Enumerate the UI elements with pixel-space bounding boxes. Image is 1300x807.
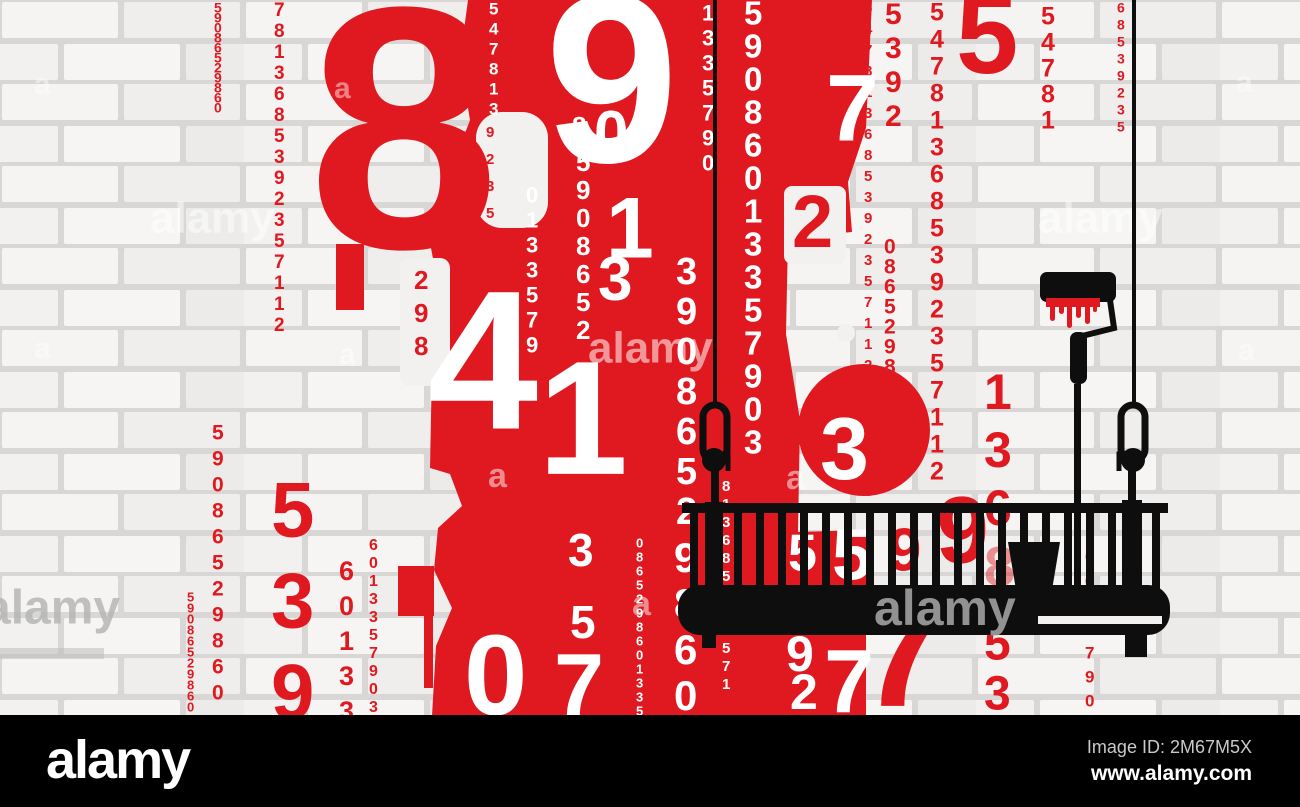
watermark-text: a: [34, 68, 51, 101]
railing-post: [712, 510, 720, 590]
big-digit: 2: [792, 180, 833, 263]
watermark-subline: [0, 648, 104, 659]
railing-top-bar: [682, 503, 1168, 513]
watermark-text: a: [339, 338, 356, 371]
railing-post: [822, 510, 830, 590]
watermark-text: a: [34, 332, 51, 365]
digit-column: 68539235: [1117, 0, 1125, 134]
railing-post: [910, 510, 918, 590]
watermark-text: a: [632, 585, 652, 623]
railing-post: [954, 510, 962, 590]
big-digit: 3: [568, 524, 594, 576]
digit-column: 59086013357903: [744, 0, 762, 460]
digit-column: 547813: [489, 0, 499, 119]
ground-bar: [0, 715, 1300, 807]
watermark-text: a: [1236, 66, 1253, 99]
watermark-text: alamy: [0, 582, 120, 635]
big-digit: 4: [428, 250, 538, 471]
big-digit: 5: [956, 0, 1018, 97]
digit-column: 0865298: [884, 236, 896, 379]
watermark-text: alamy: [874, 580, 1016, 636]
railing-post: [976, 510, 984, 590]
red-drip-bar: [424, 612, 433, 688]
big-digit: 7: [826, 55, 879, 161]
digit-column: 59086529860: [212, 422, 224, 705]
red-block: [398, 566, 434, 616]
railing-post: [1152, 510, 1160, 590]
watermark-text: alamy: [588, 324, 713, 373]
deck-under-bar: [706, 620, 818, 628]
deck-right-foot: [1125, 633, 1147, 657]
railing-post: [844, 510, 852, 590]
railing-post: [1130, 510, 1138, 590]
railing-post: [932, 510, 940, 590]
alamy-logo: alamy: [46, 730, 191, 790]
railing-post: [1086, 510, 1094, 590]
digit-column: 547813685392357112: [930, 0, 944, 486]
railing-post: [756, 510, 764, 590]
watermark-text: a: [334, 72, 351, 105]
paint-ball-hole: [837, 324, 855, 342]
digit-column: 59086529860: [187, 590, 194, 715]
digit-column: 59086529860: [214, 0, 222, 115]
watermark-text: a: [786, 459, 806, 497]
railing-post: [1064, 510, 1072, 590]
railing-post: [778, 510, 786, 590]
railing-post: [866, 510, 874, 590]
watermark-text: a: [1238, 334, 1255, 367]
deck-left-foot: [702, 620, 716, 648]
deck-slot: [1038, 616, 1162, 624]
digit-column: 60133: [339, 556, 354, 726]
watermark-text: a: [488, 457, 508, 495]
digit-column: 3908652: [676, 251, 697, 533]
railing-post: [800, 510, 808, 590]
website-label: www.alamy.com: [1090, 762, 1252, 785]
image-id-label: Image ID: 2M67M5X: [1087, 737, 1252, 757]
left-rope: [713, 0, 717, 408]
watermark-text: alamy: [1038, 194, 1163, 243]
digit-column: 539: [271, 466, 314, 736]
big-digit: 3: [820, 399, 869, 498]
railing-post: [1108, 510, 1116, 590]
watermark-front-layer: alamy: [874, 580, 1016, 636]
big-digit: 2: [790, 664, 818, 720]
railing-post: [888, 510, 896, 590]
big-digit: 8: [572, 111, 586, 141]
big-digit: 0: [594, 99, 628, 168]
big-digit: 3: [598, 245, 632, 314]
digit-column: 1335790: [702, 0, 714, 175]
bucket-icon: [1008, 542, 1060, 590]
big-digit: 5: [446, 118, 479, 185]
digit-column: 0865298601335: [636, 536, 643, 719]
digit-column: 7813685392357112: [274, 0, 285, 336]
railing-post: [690, 510, 698, 590]
railing-post: [734, 510, 742, 590]
right-rope: [1132, 0, 1136, 408]
digit-column: 6013357903: [369, 537, 378, 716]
illustration-canvas: 5908652986078136853923571129235711259086…: [0, 0, 1300, 807]
digit-column: 5392: [885, 0, 902, 133]
digit-column: 54781: [1041, 3, 1055, 135]
watermark-text: alamy: [150, 194, 275, 243]
